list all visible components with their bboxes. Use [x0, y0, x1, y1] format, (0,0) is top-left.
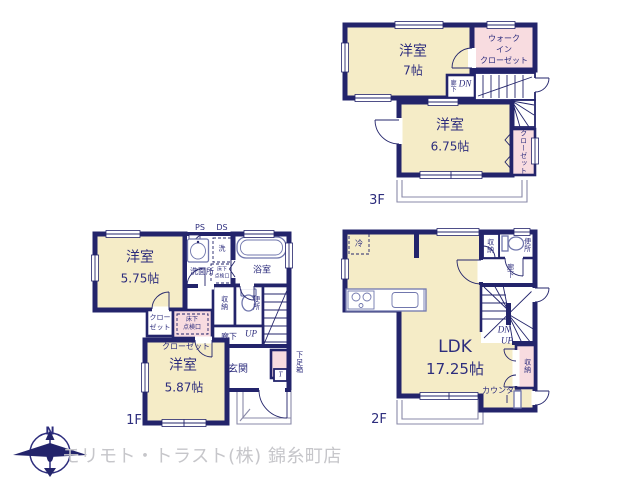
f3-wic-label-1: ウォーク: [488, 35, 520, 43]
f2-hall-label: 廊下: [506, 264, 513, 279]
porch-1f: [237, 390, 291, 424]
f1-closet1-label-1: クロー: [150, 314, 171, 321]
f1-hatch1-label-1: 床下: [217, 267, 227, 272]
f1-room1-size: 5.75帖: [121, 273, 160, 286]
f2-storage-right-label: 収納: [523, 359, 530, 374]
f1-entrance-label: 玄関: [228, 365, 248, 376]
f1-hatch2-label-2: 点検口: [183, 325, 201, 331]
f3-room1-size: 7帖: [403, 65, 423, 78]
balcony-3f: [397, 180, 527, 202]
sink-icon: [188, 239, 209, 262]
f1-laundry-label: 洗: [219, 245, 226, 252]
f2-dn-label: DN: [498, 325, 511, 334]
f1-bathroom-label: 浴室: [253, 266, 271, 275]
f1-room1-name: 洋室: [126, 251, 154, 266]
f3-hall-label: 廊下: [449, 80, 455, 93]
f2-storage-top-label: 収納: [486, 239, 493, 254]
f3-wic-label-3: クローゼット: [480, 57, 528, 65]
floorplan-page: 洋室 7帖 ウォーク イン クローゼット 廊下 DN 洋室 6.75帖 クローゼ…: [0, 0, 640, 480]
f1-up-label: UP: [245, 329, 257, 338]
f2-ldk-size: 17.25帖: [426, 362, 484, 378]
f3-room1-name: 洋室: [399, 45, 427, 60]
f2-ldk-name: LDK: [438, 339, 472, 357]
f3-room2-size: 6.75帖: [431, 141, 470, 154]
f3-dn-label: DN: [459, 79, 472, 88]
floor-3f-plan: [342, 22, 550, 203]
compass-n-label: N: [45, 425, 54, 438]
f1-toilet-label: 便所: [252, 296, 259, 311]
balcony-2f: [397, 400, 483, 424]
f3-closet-label: クローゼット: [519, 130, 526, 175]
f1-storage-label: 収納: [220, 296, 227, 311]
f2-toilet-label: 便所: [523, 238, 530, 253]
f3-room2-name: 洋室: [436, 119, 464, 134]
bathtub-icon: [237, 237, 286, 258]
f2-up-label: UP: [501, 336, 513, 345]
f1-closet2-label: クローゼット: [162, 343, 210, 351]
floorplan-drawing: [0, 0, 640, 480]
f2-floor-label: 2F: [371, 413, 387, 427]
f1-ds-label: DS: [216, 224, 227, 232]
company-name: モリモト・トラスト(株) 錦糸町店: [62, 442, 342, 468]
f1-hatch1-label-2: 点検口: [215, 274, 230, 279]
f3-floor-label: 3F: [369, 194, 385, 208]
f1-floor-label: 1F: [126, 414, 142, 428]
f2-fridge-label: 冷: [355, 240, 363, 248]
toilet-icon-2f: [502, 236, 524, 251]
kitchen-icon: [346, 289, 426, 311]
f1-room2-size: 5.87帖: [165, 382, 204, 395]
f2-counter-label: カウンター: [482, 387, 522, 395]
f1-room2-name: 洋室: [169, 359, 197, 374]
f3-wic-label-2: イン: [496, 46, 512, 54]
f1-ps-label: PS: [195, 224, 205, 232]
f1-hatch2-label-1: 床下: [186, 317, 198, 323]
f1-closet1-label-2: ゼット: [150, 324, 171, 331]
f1-hall-label: 廊下: [221, 333, 237, 341]
f1-washroom-label: 洗面所: [190, 268, 214, 276]
f1-t-label: T: [279, 371, 283, 378]
f1-shoebox-label: 下足箱: [295, 351, 302, 374]
